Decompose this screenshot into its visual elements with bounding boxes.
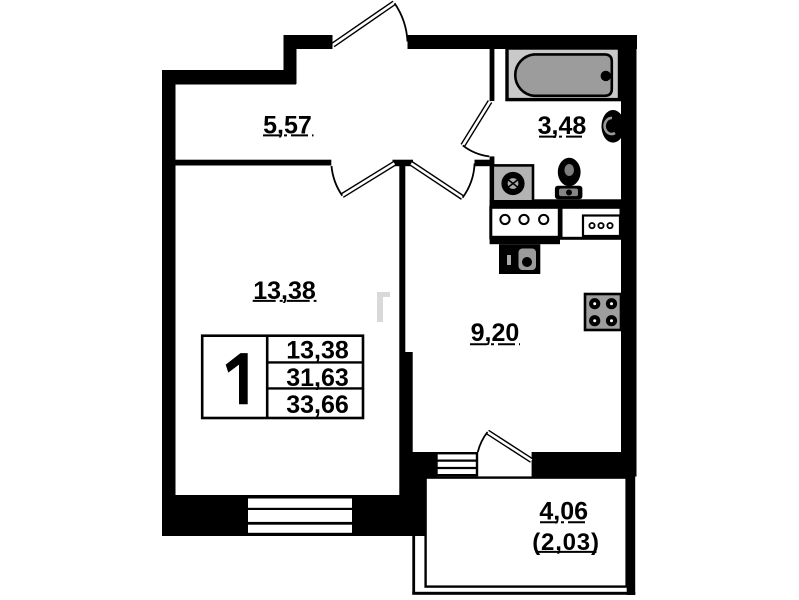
svg-text:33,66: 33,66 <box>286 391 349 419</box>
svg-text:9,20: 9,20 <box>471 319 520 347</box>
svg-text:13,38: 13,38 <box>286 337 349 365</box>
svg-text:31,63: 31,63 <box>286 364 349 392</box>
